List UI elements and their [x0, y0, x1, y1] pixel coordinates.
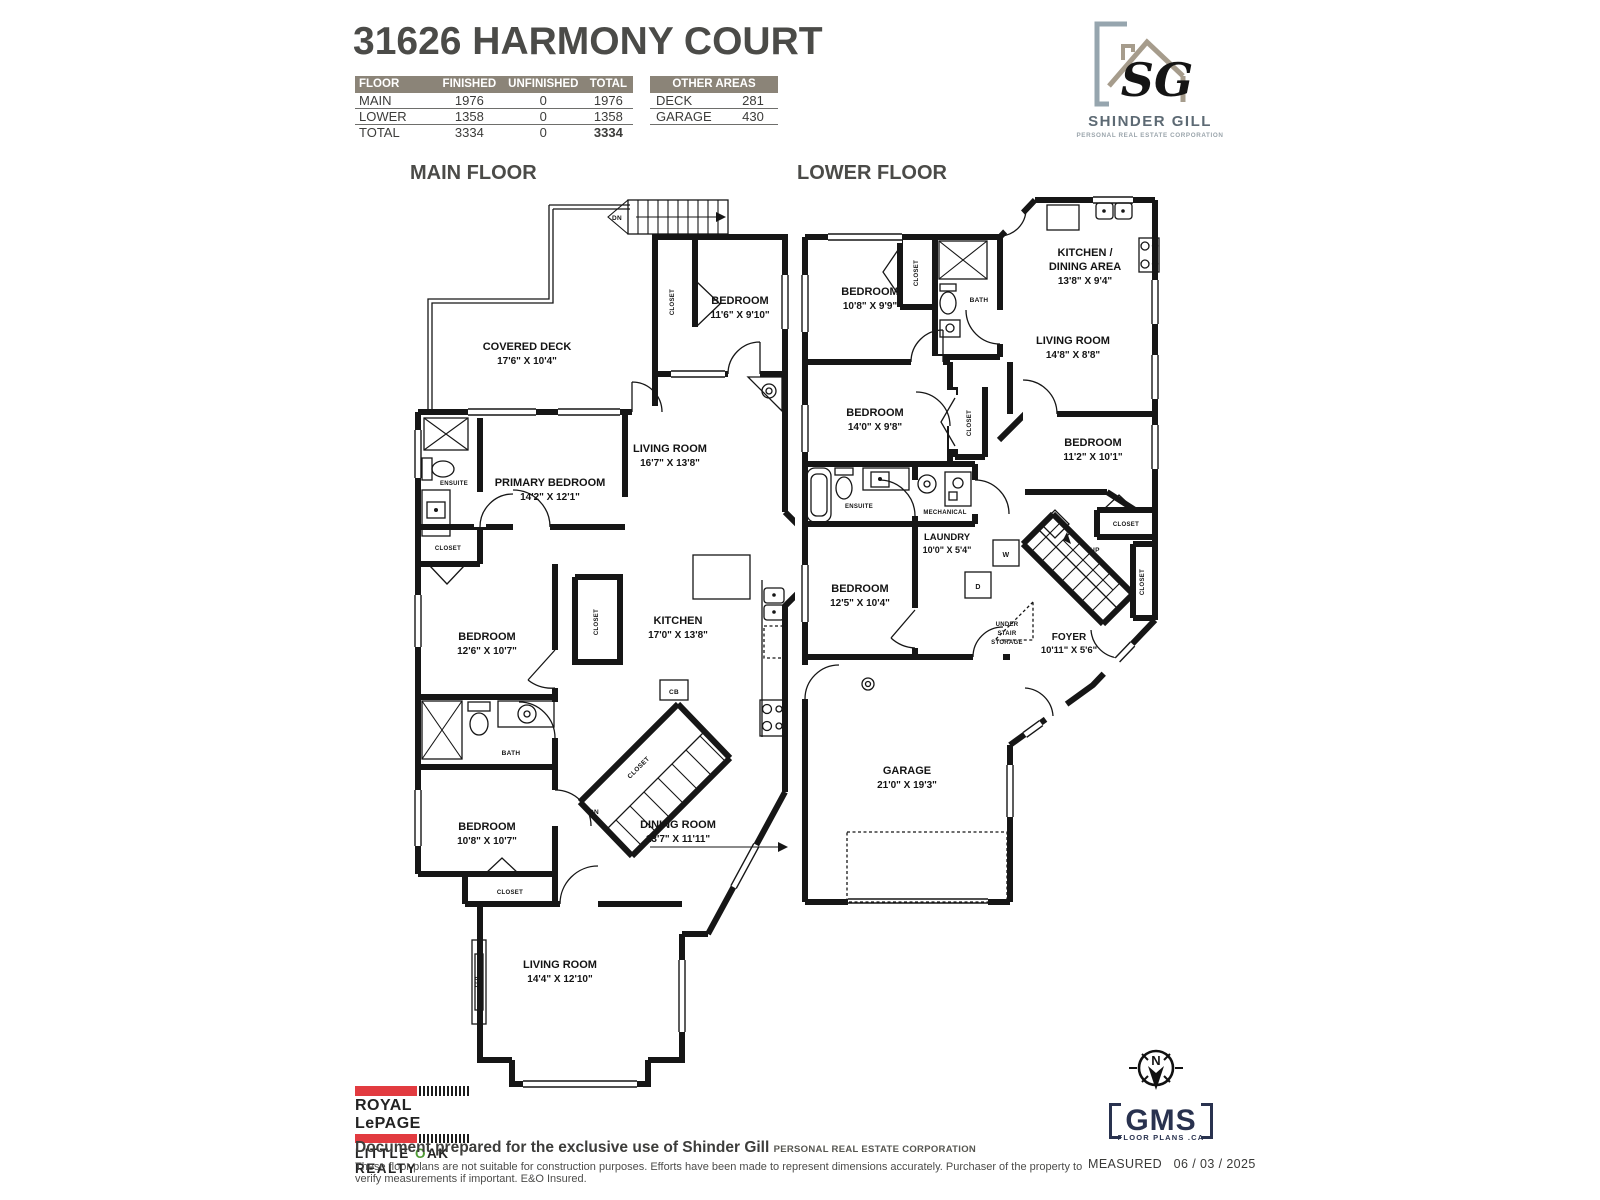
gms-logo: GMS FLOOR PLANS .CA [1106, 1103, 1216, 1142]
room-dims-bedroom-c: 11'2" X 10'1" [1063, 452, 1123, 463]
room-label-foyer: FOYER [1052, 632, 1087, 643]
room-dims-laundry: 10'0" X 5'4" [923, 545, 972, 555]
room-dims-primary-bedroom: 14'2" X 12'1" [520, 492, 580, 503]
col-header: UNFINISHED [503, 76, 584, 93]
measured-line: MEASURED 06 / 03 / 2025 [1088, 1157, 1256, 1171]
compass-icon: N [1124, 1038, 1188, 1102]
room-dims-dining-room: 13'7" X 11'11" [646, 834, 711, 845]
room-label-bedroom-low: BEDROOM [458, 821, 515, 833]
ensuite-fixtures [422, 418, 468, 536]
cell: 430 [728, 109, 778, 124]
room-dims-bedroom-b: 14'0" X 9'8" [848, 422, 903, 433]
covered-deck-outline [428, 205, 630, 410]
room-dims-bedroom-low: 10'8" X 10'7" [457, 836, 517, 847]
cell: 1976 [584, 93, 633, 108]
cell: 1358 [584, 109, 633, 124]
room-dims-living-room: 14'8" X 8'8" [1046, 350, 1101, 361]
cell: 0 [503, 125, 584, 140]
room-dims-bedroom-mid: 12'6" X 10'7" [457, 646, 517, 657]
room-dims-kitchen: 17'0" X 13'8" [648, 630, 708, 641]
under-stair-label: STAIR [997, 631, 1016, 637]
room-label-kitchen-dining: KITCHEN / [1058, 247, 1113, 259]
cell: TOTAL [355, 125, 436, 140]
brand-name: SHINDER GILL [1075, 113, 1225, 130]
room-label-living-room: LIVING ROOM [633, 443, 707, 455]
stairs-dn-label: DN [589, 809, 599, 816]
table-row: LOWER 1358 0 1358 [355, 109, 633, 125]
closet-label: CLOSET [594, 609, 600, 635]
cell: LOWER [355, 109, 436, 124]
cell: 3334 [436, 125, 503, 140]
measured-label: MEASURED [1088, 1157, 1162, 1171]
table-row: MAIN 1976 0 1976 [355, 93, 633, 109]
room-dims-garage: 21'0" X 19'3" [877, 780, 937, 791]
col-header: OTHER AREAS [672, 76, 755, 93]
closet-label: CLOSET [1140, 569, 1146, 595]
room-label-living-room: LIVING ROOM [1036, 335, 1110, 347]
room-label-dining-room: DINING ROOM [640, 819, 716, 831]
cell: 281 [728, 93, 778, 108]
cell: 3334 [584, 125, 633, 140]
measured-date: 06 / 03 / 2025 [1174, 1157, 1256, 1171]
stairs-up-label: UP [1090, 547, 1100, 554]
col-header: FINISHED [436, 76, 503, 93]
mechanical-fixtures [918, 472, 971, 506]
room-label-bedroom-mid: BEDROOM [458, 631, 515, 643]
cell: DECK [650, 93, 728, 108]
prepared-line: Document prepared for the exclusive use … [355, 1139, 976, 1157]
room-dims-bedroom-d: 12'5" X 10'4" [830, 598, 890, 609]
page-title: 31626 HARMONY COURT [353, 20, 823, 64]
lower-floor-plan: UP [795, 192, 1165, 907]
room-dims-foyer: 10'11" X 5'6" [1041, 645, 1097, 656]
room-label-primary-bedroom: PRIMARY BEDROOM [495, 477, 606, 489]
bath-label: BATH [502, 750, 521, 757]
brokerage-name: ROYAL LePAGE [355, 1097, 475, 1133]
room-label-kitchen-dining-2: DINING AREA [1049, 261, 1121, 273]
room-label-bedroom-top: BEDROOM [711, 295, 768, 307]
room-label-bedroom-d: BEDROOM [831, 583, 888, 595]
room-dims-living-room: 16'7" X 13'8" [640, 458, 700, 469]
room-label-living-room-low: LIVING ROOM [523, 959, 597, 971]
prepared-suffix: PERSONAL REAL ESTATE CORPORATION [774, 1144, 976, 1155]
bath-fixtures [422, 701, 554, 759]
room-dims-living-room-low: 14'4" X 12'10" [527, 974, 593, 985]
col-header: FLOOR [355, 76, 436, 93]
table-row: GARAGE 430 [650, 109, 778, 125]
efp-label: EFP [475, 976, 481, 987]
other-areas-header: OTHER AREAS [650, 76, 778, 93]
room-dims-covered-deck: 17'6" X 10'4" [497, 356, 557, 367]
main-floor-label: MAIN FLOOR [410, 162, 537, 185]
floor-plan-page: 31626 HARMONY COURT FLOOR FINISHED UNFIN… [0, 0, 1600, 1200]
stairs-dn-label: DN [612, 215, 622, 222]
closet-label: CLOSET [497, 890, 523, 896]
other-areas-table: OTHER AREAS DECK 281 GARAGE 430 [650, 76, 778, 125]
room-dims-bedroom-top: 11'6" X 9'10" [710, 310, 770, 321]
closet-label: CLOSET [627, 756, 652, 781]
brand-logo: SG SHINDER GILL PERSONAL REAL ESTATE COR… [1075, 16, 1225, 139]
closet-label: CLOSET [1113, 522, 1139, 528]
lower-floor-label: LOWER FLOOR [797, 162, 947, 185]
area-table: FLOOR FINISHED UNFINISHED TOTAL MAIN 197… [355, 76, 633, 140]
table-row: DECK 281 [650, 93, 778, 109]
fireplace-icon [748, 377, 782, 411]
kitchen-fixtures [693, 555, 785, 737]
cell: 1976 [436, 93, 503, 108]
room-label-covered-deck: COVERED DECK [483, 341, 572, 353]
house-logo-icon: SG [1075, 16, 1225, 108]
cell: 0 [503, 93, 584, 108]
brand-initials: SG [1121, 53, 1194, 107]
cell: GARAGE [650, 109, 728, 124]
room-label-garage: GARAGE [883, 765, 931, 777]
room-dims-bedroom-a: 10'8" X 9'9" [843, 301, 898, 312]
cell: 0 [503, 109, 584, 124]
ensuite-label: ENSUITE [440, 481, 468, 487]
main-floor-plan: DN [410, 192, 795, 1102]
room-dims-kitchen-dining: 13'8" X 9'4" [1058, 276, 1113, 287]
dryer-label: D [975, 584, 980, 591]
cell: MAIN [355, 93, 436, 108]
bath-label: BATH [970, 297, 989, 304]
compass-n-label: N [1151, 1053, 1160, 1068]
ensuite-label: ENSUITE [845, 504, 873, 510]
under-stair-label: UNDER [996, 622, 1019, 628]
mechanical-label: MECHANICAL [923, 510, 966, 516]
laundry-fixtures [965, 540, 1019, 598]
brand-tagline: PERSONAL REAL ESTATE CORPORATION [1075, 132, 1225, 139]
closet-label: CLOSET [914, 260, 920, 286]
closet-label: CLOSET [435, 546, 461, 552]
windows [412, 275, 795, 1090]
table-row: TOTAL 3334 0 3334 [355, 125, 633, 140]
closet-label: CLOSET [670, 289, 676, 315]
washer-label: W [1003, 552, 1010, 559]
area-table-header: FLOOR FINISHED UNFINISHED TOTAL [355, 76, 633, 93]
cell: 1358 [436, 109, 503, 124]
closet-label: CLOSET [967, 410, 973, 436]
room-label-bedroom-a: BEDROOM [841, 286, 898, 298]
room-label-kitchen: KITCHEN [654, 615, 703, 627]
room-label-laundry: LAUNDRY [924, 532, 971, 543]
room-label-bedroom-c: BEDROOM [1064, 437, 1121, 449]
col-header: TOTAL [584, 76, 633, 93]
gms-subtitle: FLOOR PLANS .CA [1118, 1133, 1205, 1142]
under-stair-label: STORAGE [991, 640, 1023, 646]
bath-fixtures [939, 241, 987, 337]
room-label-bedroom-b: BEDROOM [846, 407, 903, 419]
cb-label: CB [669, 689, 679, 696]
prepared-text: Document prepared for the exclusive use … [355, 1139, 774, 1156]
disclaimer-text: These floor plans are not suitable for c… [355, 1161, 1095, 1185]
ensuite-fixtures [807, 468, 909, 522]
